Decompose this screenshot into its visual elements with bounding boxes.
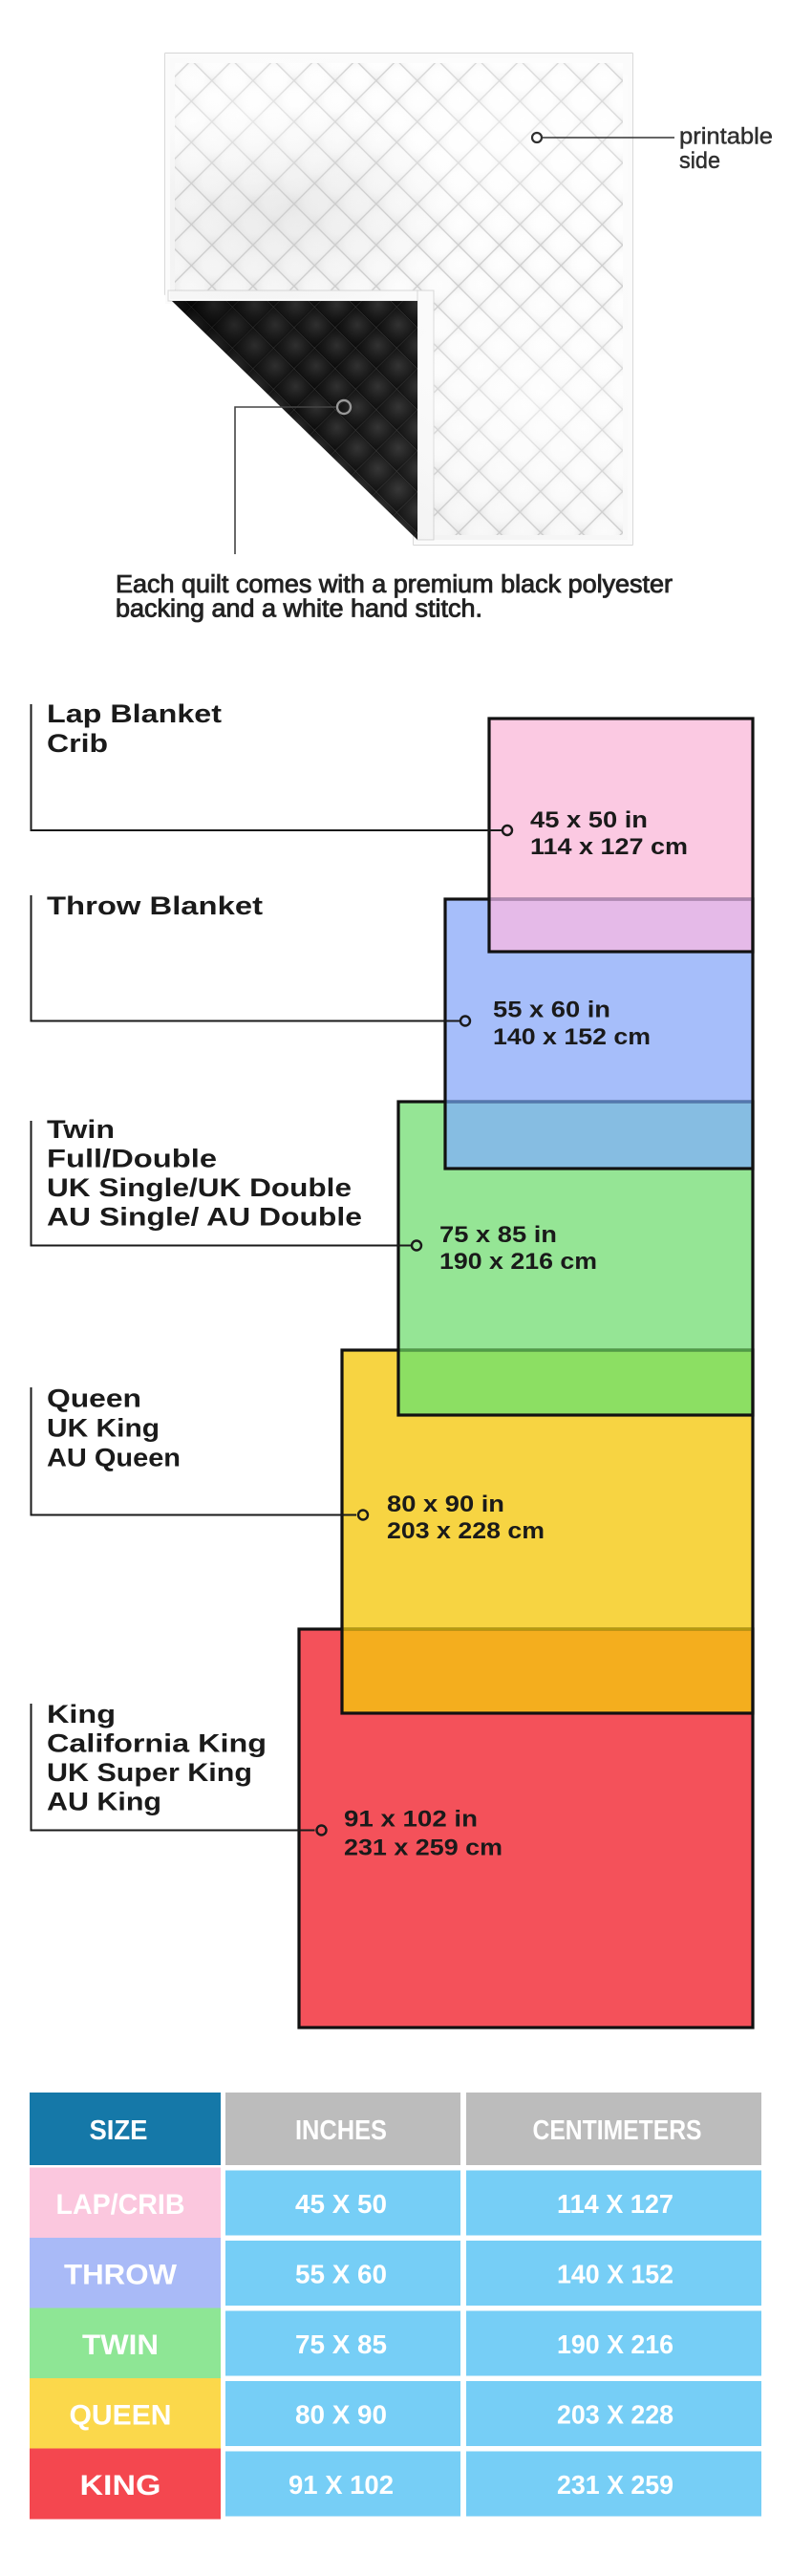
svg-text:55 x 60 in: 55 x 60 in	[493, 998, 610, 1023]
svg-text:THROW: THROW	[64, 2260, 178, 2291]
svg-text:80 X 90: 80 X 90	[295, 2400, 387, 2430]
svg-text:114 X 127: 114 X 127	[557, 2189, 673, 2219]
svg-text:55 X 60: 55 X 60	[295, 2260, 387, 2289]
svg-text:75 x 85 in: 75 x 85 in	[439, 1222, 557, 1248]
svg-text:AU Queen: AU Queen	[47, 1444, 181, 1472]
svg-text:TWIN: TWIN	[82, 2329, 159, 2361]
svg-text:45 X 50: 45 X 50	[295, 2189, 387, 2219]
svg-text:LAP/CRIB: LAP/CRIB	[56, 2189, 185, 2221]
svg-text:91 X 102: 91 X 102	[289, 2470, 394, 2500]
svg-text:Lap Blanket: Lap Blanket	[47, 699, 222, 728]
svg-text:Each quilt comes with a premiu: Each quilt comes with a premium black po…	[116, 571, 673, 598]
svg-text:45 x 50 in: 45 x 50 in	[530, 807, 648, 833]
svg-text:CENTIMETERS: CENTIMETERS	[533, 2115, 702, 2146]
svg-text:UK Super King: UK Super King	[47, 1758, 252, 1787]
svg-text:AU Single/ AU Double: AU Single/ AU Double	[47, 1203, 362, 1232]
svg-text:Queen: Queen	[47, 1385, 141, 1413]
svg-text:Full/Double: Full/Double	[47, 1145, 217, 1173]
svg-text:Twin: Twin	[47, 1115, 115, 1144]
svg-text:91 x 102 in: 91 x 102 in	[344, 1807, 478, 1833]
svg-text:KING: KING	[80, 2470, 161, 2501]
svg-text:75 X 85: 75 X 85	[295, 2329, 387, 2359]
svg-text:Throw Blanket: Throw Blanket	[47, 891, 263, 920]
svg-text:190 x 216 cm: 190 x 216 cm	[439, 1249, 597, 1275]
svg-text:SIZE: SIZE	[90, 2115, 148, 2146]
svg-text:203 x 228 cm: 203 x 228 cm	[387, 1518, 545, 1544]
svg-text:Crib: Crib	[47, 729, 108, 758]
svg-text:UK King: UK King	[47, 1414, 160, 1443]
svg-text:190 X 216: 190 X 216	[557, 2329, 673, 2359]
svg-text:140 x 152 cm: 140 x 152 cm	[493, 1024, 651, 1050]
svg-text:UK Single/UK Double: UK Single/UK Double	[47, 1173, 352, 1202]
svg-text:QUEEN: QUEEN	[70, 2400, 172, 2432]
svg-text:231 X 259: 231 X 259	[557, 2470, 673, 2500]
svg-text:printable: printable	[679, 124, 773, 150]
svg-text:side: side	[679, 148, 720, 174]
svg-text:AU King: AU King	[47, 1788, 161, 1816]
svg-text:80 x 90 in: 80 x 90 in	[387, 1492, 504, 1517]
svg-text:California King: California King	[47, 1729, 267, 1758]
svg-text:140 X 152: 140 X 152	[557, 2260, 673, 2289]
svg-text:114 x 127 cm: 114 x 127 cm	[530, 834, 688, 860]
svg-text:INCHES: INCHES	[295, 2115, 387, 2146]
svg-text:203 X 228: 203 X 228	[557, 2400, 673, 2430]
svg-text:King: King	[47, 1700, 116, 1728]
svg-text:backing and a white hand stitc: backing and a white hand stitch.	[116, 596, 482, 623]
svg-text:231 x 259 cm: 231 x 259 cm	[344, 1835, 502, 1861]
